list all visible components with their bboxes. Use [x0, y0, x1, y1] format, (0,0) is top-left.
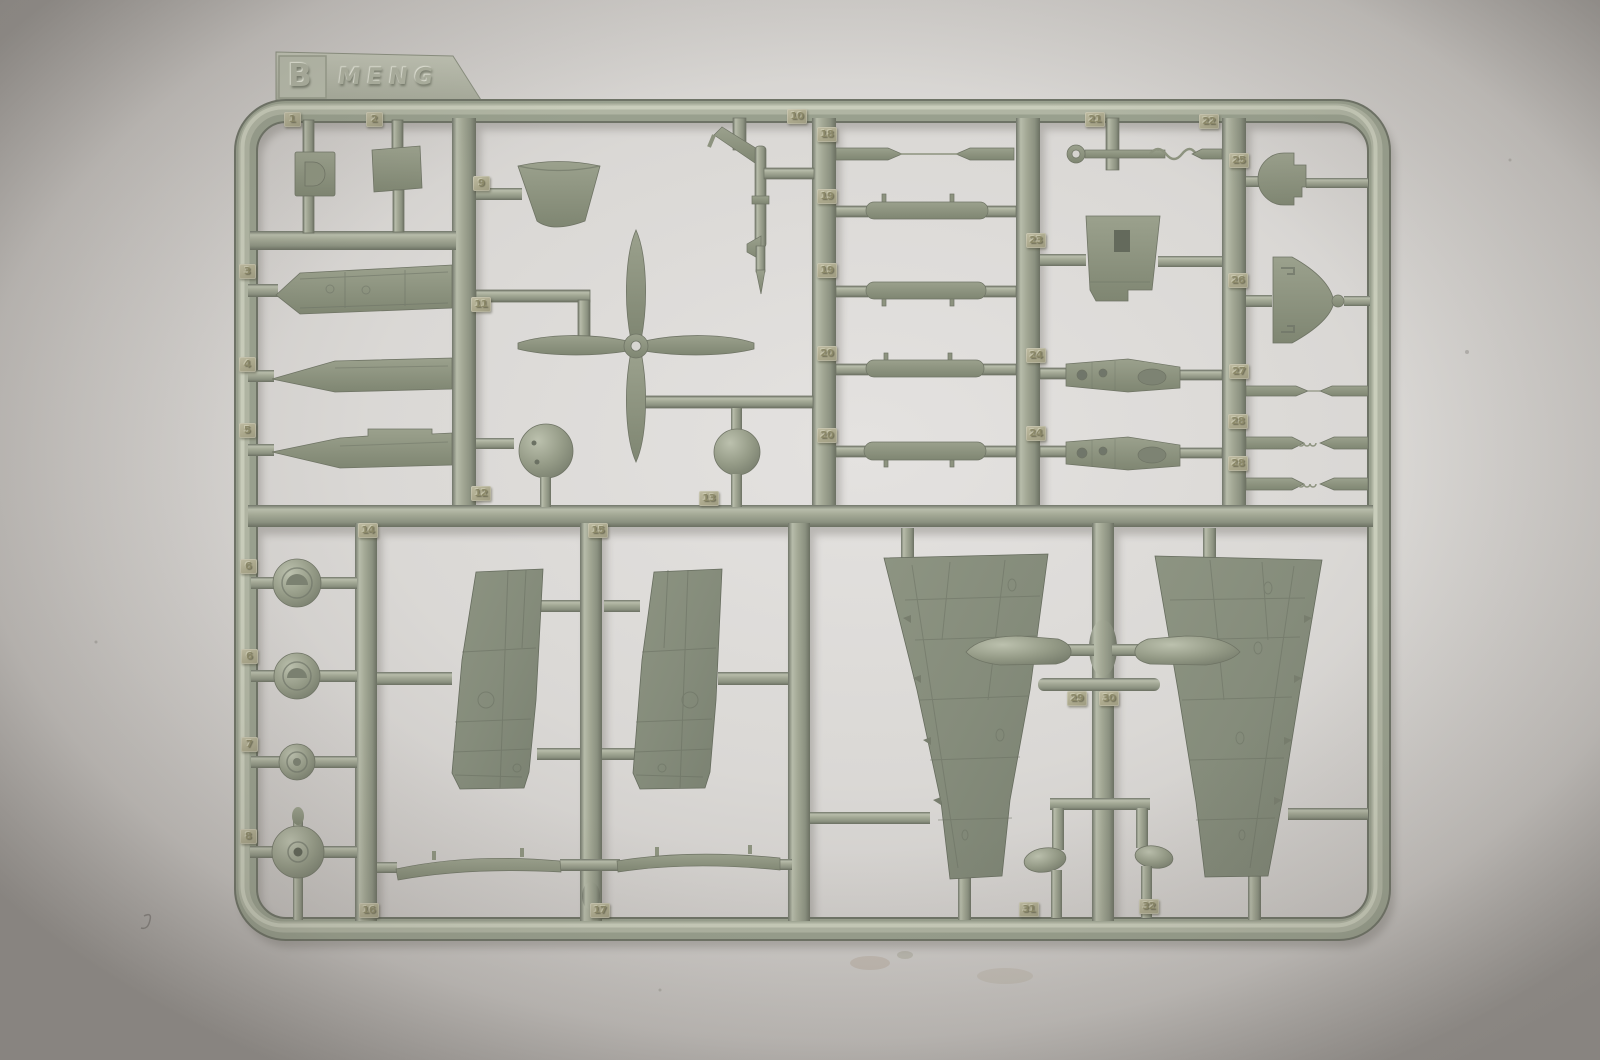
part-number-tag: 22 [1199, 114, 1219, 129]
part-number-tag: 14 [358, 523, 378, 538]
part-number-tag: 2 [366, 112, 383, 127]
part-17-flap-strip [617, 845, 792, 872]
part-number-tag: 12 [471, 486, 491, 501]
part-number-tag: 28 [1228, 456, 1248, 471]
part-25-bulkhead [1246, 153, 1368, 205]
part-number-tag: 25 [1229, 153, 1249, 168]
part-number-tag: 32 [1139, 899, 1159, 914]
part-number-tag: 19 [817, 263, 837, 278]
sprue-photo-stage: B MENG 1 2 3 4 5 6 6 7 8 9 10 11 12 13 1… [0, 0, 1600, 1060]
part-number-tag: 24 [1026, 348, 1046, 363]
part-19-float [836, 194, 1016, 219]
part-8-hub-disc [250, 807, 357, 920]
part-number-tag: 18 [817, 127, 837, 142]
sprue-letter: B [288, 58, 312, 94]
part-23-mount-box [1040, 216, 1222, 301]
part-number-tag: 3 [239, 264, 256, 279]
part-number-tag: 5 [239, 423, 256, 438]
part-14-wing-panel [377, 569, 580, 789]
part-number-tag: 17 [590, 903, 610, 918]
part-number-tag: 23 [1026, 233, 1046, 248]
part-number-tag: 10 [787, 109, 807, 124]
part-30-fairing [1112, 636, 1240, 665]
part-number-tag: 27 [1229, 364, 1249, 379]
part-27-rod [1246, 386, 1368, 396]
part-number-tag: 20 [817, 428, 837, 443]
part-24-bracket [1040, 359, 1222, 392]
part-number-tag: 21 [1085, 112, 1105, 127]
part-number-tag: 20 [817, 346, 837, 361]
part-number-tag: 16 [359, 903, 379, 918]
part-15-wing-panel [602, 569, 788, 789]
part-number-tag: 1 [284, 112, 301, 127]
part-31-pod [1023, 798, 1150, 918]
part-number-tag: 29 [1067, 691, 1087, 706]
part-number-tag: 8 [240, 829, 257, 844]
part-number-tag: 6 [240, 559, 257, 574]
part-19-float [836, 282, 1016, 306]
part-28-rod [1246, 437, 1368, 449]
part-number-tag: 7 [241, 737, 258, 752]
part-number-tag: 4 [239, 357, 256, 372]
part-10-strut [709, 118, 814, 294]
fairing-gate-bar [1038, 678, 1160, 691]
part-24-bracket [1040, 437, 1222, 470]
lower-wing-panel-right [1155, 528, 1368, 920]
part-3-fuselage-half [248, 265, 452, 314]
part-13-spinner-ball [714, 408, 760, 507]
part-number-tag: 15 [588, 523, 608, 538]
part-number-tag: 28 [1228, 414, 1248, 429]
part-number-tag: 26 [1228, 273, 1248, 288]
part-number-tag: 9 [473, 176, 490, 191]
part-20-float [836, 442, 1016, 467]
part-29-fairing [966, 636, 1094, 665]
part-number-tag: 24 [1026, 426, 1046, 441]
part-9-cowling [476, 162, 600, 228]
part-number-tag: 11 [471, 297, 491, 312]
part-4-fuselage-strip [248, 358, 452, 392]
sprue-illustration [0, 0, 1600, 1060]
brand-logo: MENG [336, 64, 440, 90]
part-number-tag: 13 [699, 491, 719, 506]
part-20-float [836, 353, 1016, 377]
part-6-wheel [251, 653, 357, 699]
part-2-block [372, 120, 422, 232]
part-7-wheel [251, 744, 357, 780]
part-5-fuselage-strip [248, 429, 452, 468]
part-1-box [295, 120, 335, 233]
part-6-wheel [251, 559, 357, 607]
part-28-rod [1246, 478, 1368, 490]
part-number-tag: 31 [1019, 902, 1039, 917]
part-26-bulkhead [1246, 257, 1370, 343]
part-number-tag: 30 [1099, 691, 1119, 706]
part-number-tag: 6 [241, 649, 258, 664]
lower-wing-panel-left [810, 528, 1048, 920]
part-number-tag: 19 [817, 189, 837, 204]
part-18-rod [836, 148, 1014, 160]
